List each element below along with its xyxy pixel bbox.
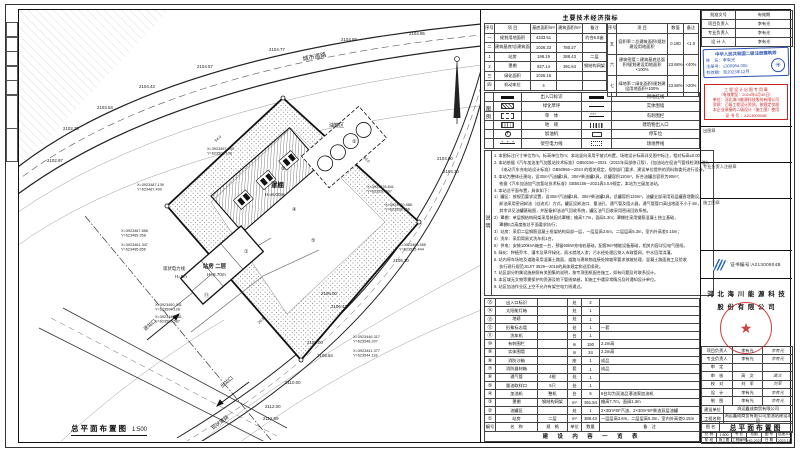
- legend-symbol-icon: [589, 116, 604, 117]
- plan-label: X=3923478.841: [367, 185, 394, 189]
- table-row: ⑭ 太阳能灯箱 处 1: [485, 307, 700, 315]
- legend-symbol-icon: [589, 96, 604, 99]
- legend-symbol-cell: [494, 120, 522, 129]
- plan-label: 2104.89: [341, 37, 357, 42]
- cell-qty: 1: [582, 315, 600, 323]
- plan-label: 罩棚: [271, 180, 284, 189]
- cell-name: 站房: [496, 415, 538, 423]
- table-row: ⑩ 有刺围栏 m 150 2.2m高: [485, 340, 700, 348]
- plan-label: 2103.54: [97, 105, 113, 110]
- table-row: 二 建筑基底/总建筑面积 1026.33 780.27: [485, 43, 607, 53]
- cell-note: [583, 71, 607, 81]
- cell-seq: 五: [608, 33, 617, 54]
- plan-label: X=3923441.377: [353, 349, 380, 353]
- cell-unit: 台: [568, 332, 582, 340]
- legend-strip-cell: [485, 139, 494, 148]
- cell-spec: 4根: [538, 373, 568, 381]
- cell-unit: 台: [568, 390, 582, 398]
- staff-role: 项目负责人: [702, 347, 733, 355]
- note-line: 6. 站内停车场地及道路采用混凝土路面，道路与建筑物连接处按坡率要求放坡处理，混…: [494, 257, 712, 264]
- table-header-row: 序号项 目 数值备注: [608, 24, 699, 34]
- cell-unit: m: [568, 340, 582, 348]
- cell-area1: 827.14: [531, 62, 557, 72]
- north-arrow-icon: [454, 56, 461, 124]
- plan-label: 2104.00: [437, 156, 453, 161]
- cell-name: 罩棚: [496, 398, 538, 406]
- note-line: 1. 本图标注尺寸单位为m，标高单位为m；本站竖向采用平坡式布置，场地设计标高详…: [494, 153, 712, 160]
- cell-qty: 150: [582, 340, 600, 348]
- cell-seq: 2: [485, 62, 495, 72]
- cell-item: 站房: [495, 52, 531, 62]
- cell-unit: m: [568, 348, 582, 356]
- seal-star: ★: [740, 320, 753, 337]
- cell-spec: [538, 299, 568, 307]
- plan-label: H=8.70m: [207, 272, 226, 277]
- legend-symbol-icon: [501, 113, 514, 119]
- cell-note: [600, 332, 700, 340]
- plan-label: X=3923463.555: [399, 243, 426, 247]
- table-row: 专业负责人 李有光: [702, 29, 793, 38]
- staff-role: 设 计: [702, 388, 733, 396]
- note-line: 5. 绿化：种植乔木、灌木及草坪绿化，雨水就地入渗；污水经处理后排入市政管网，中…: [494, 250, 712, 257]
- cell-no: ⑪: [485, 332, 496, 340]
- cell-area2: [557, 71, 583, 81]
- cell-spec: [538, 315, 568, 323]
- plan-label: ④: [292, 207, 297, 213]
- cell-item: 规划用地面积: [495, 33, 531, 43]
- cell-name: 有刺围栏: [496, 340, 538, 348]
- note-line: 3）站房：采用二层钢筋混凝土框架结构局部一层，一层层高3.6m，二层层高5.3m…: [494, 229, 712, 236]
- table-row: 一 规划用地面积 4333.51 约合6.5亩: [485, 33, 607, 43]
- plan-label: 站房 二层: [203, 262, 227, 270]
- plan-label: Y=623500.128: [155, 308, 180, 312]
- cell-spec: [538, 340, 568, 348]
- cell-spec: [538, 365, 568, 373]
- cell-area1: 1026.33: [531, 43, 557, 53]
- staff-signature: 李有光: [763, 355, 793, 363]
- cell-unit: 处: [568, 381, 582, 389]
- cell-no: ⑦: [485, 365, 496, 373]
- cell-qty: 1: [582, 323, 600, 331]
- plan-title: 总平面布置图1:500: [71, 423, 147, 436]
- cell-note: 钢结构网架: [583, 62, 607, 72]
- cell-seq: 三: [485, 71, 495, 81]
- stamp-line: 证 书 号 ：A21300904B: [706, 113, 786, 118]
- legend-symbol-cell: [582, 102, 612, 111]
- content-table-title: 建 设 内 容 一 览 表: [485, 431, 700, 441]
- plan-label: ⑪: [204, 292, 209, 299]
- legend-row: 架空电力线 场地界线: [485, 139, 700, 148]
- cell-qty: 1: [582, 365, 600, 373]
- cell-spec: [538, 348, 568, 356]
- legend-row: 出入口标识 用地红线: [485, 93, 700, 102]
- cell-name: 形象标志墙: [496, 323, 538, 331]
- staff-role: 专业负责人: [702, 355, 733, 363]
- cell-spec: 整机: [538, 390, 568, 398]
- plan-label: X=3923467.858: [121, 229, 148, 233]
- table-row: ⑤ 量油取样口 5只 处 1: [485, 381, 700, 389]
- plan-label: 2104.30: [443, 169, 459, 174]
- econ-left-table: 序号项 目 基底面积/m²建筑面积/m² 备注 一 规划用地面积 4333.51…: [484, 23, 607, 91]
- table-row: ⑫ 形象标志墙 处 1 一套: [485, 323, 700, 331]
- table-row: 项目负责人 李有光: [702, 20, 793, 29]
- notes-section: 说明 1. 本图标注尺寸单位为m，标高单位为m；本站竖向采用平坡式布置，场地设计…: [484, 150, 699, 296]
- cell-note: [600, 373, 700, 381]
- legend-label: 单 体: [522, 111, 582, 120]
- cell-no: ⑩: [485, 340, 496, 348]
- legend-symbol-cell: [582, 111, 612, 120]
- cell-unit: 套: [568, 365, 582, 373]
- existing-road: [39, 308, 287, 441]
- cell-qty: 6: [582, 390, 600, 398]
- plan-label: X=3923446.317: [353, 335, 380, 339]
- table-row: 校 对 刘 军 刘军: [702, 380, 793, 388]
- cell-spec: [538, 332, 568, 340]
- cell-note: 成品: [600, 365, 700, 373]
- plan-label: ③: [281, 166, 286, 172]
- plan-label: Y=623528.966: [385, 208, 410, 212]
- staff-signature: 李有光: [763, 397, 793, 405]
- cell-qty: 1: [582, 332, 600, 340]
- drawing-sheet: 2102.302102.972103.542104.432104.572104.…: [0, 0, 800, 452]
- cell-qty: 1: [582, 373, 600, 381]
- cell-spec: [538, 323, 568, 331]
- table-row: 三 绿化面积 1026.16: [485, 71, 607, 81]
- table-row: ⑥ 通气管 4根 处 1: [485, 373, 700, 381]
- cell-name: 地磅: [496, 315, 538, 323]
- legend-symbol-cell: [494, 139, 522, 148]
- role-name: 李有光: [736, 38, 793, 47]
- table-row: 五 容积率＝总建筑面积/规划建设用地面积 0.180 <1.0: [608, 33, 699, 54]
- cell-item: 建筑密度＝建筑基底总面积/规划建设用地面积×100%: [617, 54, 668, 75]
- table-row: 审 定: [702, 363, 793, 371]
- legend-symbol-cell: [494, 102, 522, 111]
- legend-label: 实体围墙: [612, 102, 700, 111]
- cell-qty: 1: [582, 357, 600, 365]
- staff-signature: 刘军: [763, 380, 793, 388]
- staff-name: 高 文: [733, 372, 763, 380]
- cell-value: 23.68%: [668, 54, 684, 75]
- project-value: 鸿运鑫成商贸有限公司: [724, 406, 793, 414]
- plan-label: X=3923461.347: [121, 243, 148, 247]
- plan-label: H=8.00m: [265, 192, 285, 198]
- cell-note: [600, 307, 700, 315]
- title-block: 批准文号 有效期 项目负责人 李有光 专业负责人 李有光 设 计 人 李有光 中…: [700, 10, 791, 443]
- legend-symbol-cell: [494, 130, 522, 139]
- table-row: ⑨ 实体围墙 m 34 2.2m高: [485, 348, 700, 356]
- approval-col2: 有效期: [736, 11, 793, 20]
- table-row: 专业负责人 李有光 李有光: [702, 355, 793, 363]
- cell-unit: 处: [568, 373, 582, 381]
- table-row: 建设单位 鸿运鑫成商贸有限公司: [702, 406, 793, 414]
- cell-qty: 1: [582, 381, 600, 389]
- legend-symbol-icon: [501, 96, 514, 100]
- table-row: 1 站房 198.19 388.43 二层: [485, 52, 607, 62]
- plan-title-text: 总平面布置图: [71, 424, 128, 433]
- cell-spec: 钢结构网架: [538, 398, 568, 406]
- cell-qty: 391.84: [582, 398, 600, 406]
- cell-note: [583, 81, 607, 91]
- cell-item: 容积率＝总建筑面积/规划建设用地面积: [617, 33, 668, 54]
- site-plan: 2102.302102.972103.542104.432104.572104.…: [19, 10, 480, 441]
- binding-cell: [6, 22, 18, 37]
- binding-cell: [6, 80, 18, 95]
- legend-symbol-cell: [582, 120, 612, 129]
- plan-label: H=8m: [175, 274, 187, 279]
- legend-symbol-icon: [592, 132, 602, 138]
- cell-note: 6台均为双油品潜油泵加油机: [600, 390, 700, 398]
- cell-unit: 处: [568, 299, 582, 307]
- legend-symbol-icon: [501, 103, 514, 109]
- plan-label: 城市道路: [302, 51, 327, 63]
- staff-signature: [763, 363, 793, 371]
- staff-table: 项目负责人 李有光 李有光 专业负责人 李有光 李有光 审 定 审 核 高 文 …: [701, 346, 793, 406]
- staff-role: 制 图: [702, 397, 733, 405]
- legend-label: 停车位: [612, 130, 700, 139]
- plan-scale: 1:500: [132, 427, 147, 433]
- staff-role: 校 对: [702, 380, 733, 388]
- legend-symbol-cell: [494, 111, 522, 120]
- cell-area1: 1026.16: [531, 71, 557, 81]
- cell-qty: 1: [582, 307, 600, 315]
- plan-label: Y=623487.490: [137, 188, 162, 192]
- legend-label: 地 磅: [522, 120, 582, 129]
- staff-signature: 李有光: [763, 388, 793, 396]
- cell-note: 一层层高3.6m，二层层高5.3m，室内外高差0.15m: [600, 415, 700, 423]
- legend-symbol-icon: [500, 143, 515, 144]
- plan-label: 2102.97: [47, 158, 63, 163]
- legend-row: 地 磅 建筑物出入口: [485, 120, 700, 129]
- cell-seq: 六: [608, 54, 617, 75]
- table-row: 审 核 高 文 高文: [702, 372, 793, 380]
- cell-spec: 二层: [538, 415, 568, 423]
- cell-area1: 4333.51: [531, 33, 557, 43]
- plan-label: ②: [352, 139, 357, 145]
- table-row: 批准文号 有效期: [702, 11, 793, 20]
- legend-label: 加油机: [522, 130, 582, 139]
- legend-symbol-icon: [501, 122, 514, 128]
- table-row: ⑮ 出入口标识 处 2: [485, 299, 700, 307]
- plan-label: 80.0: [362, 156, 370, 164]
- plan-label: 2110.00: [285, 380, 301, 385]
- table-row: 阶 段施工图 工程编号HQ-2023-12 日 期2023.11: [702, 438, 792, 444]
- content-table-title-row: 建 设 内 容 一 览 表: [485, 431, 700, 441]
- cell-no: ⑤: [485, 381, 496, 389]
- cell-qty: 388.43: [582, 415, 600, 423]
- cell-note: 约合6.5亩: [583, 33, 607, 43]
- legend-label: 架空电力线: [522, 139, 582, 148]
- cell-no: ①: [485, 415, 496, 423]
- cell-no: ③: [485, 398, 496, 406]
- construction-seal-box: 施工图章: [701, 198, 792, 250]
- table-row: ⑧ 消防沙箱 座 1 成品: [485, 357, 700, 365]
- plan-label: X=3923487.139: [137, 183, 164, 187]
- cell-note: 2×30m³SF汽油、2×30m³SF柴油双层油罐: [600, 406, 700, 414]
- legend-strip-label: 图例: [485, 106, 492, 122]
- table-row: 制 图 李有光 李有光: [702, 397, 793, 405]
- staff-role: 审 定: [702, 363, 733, 371]
- plan-label: Y=623544.118: [353, 354, 378, 358]
- box-label: 专业负责人注册章: [701, 163, 792, 170]
- middle-panel: 主要技术经济指标 序号项 目 基底面积/m²建筑面积/m² 备注 一 规划用地面…: [480, 10, 700, 443]
- cell-spec: [538, 307, 568, 315]
- plan-label: X=3923450.341: [155, 303, 182, 307]
- chutu-seal-box: 出图章: [701, 126, 792, 162]
- binding-cell: [6, 95, 18, 129]
- cell-unit: m²: [568, 398, 582, 406]
- table-header-row: 序号项 目 基底面积/m²建筑面积/m² 备注: [485, 24, 607, 34]
- box-label: 出图章: [701, 127, 792, 134]
- stamp-line: 本企业承接的二级设计（施工图）使用: [706, 107, 786, 112]
- note-line: 《电动汽车充电站设计标准》GB50966—2024 的相关规定，规划部门要求、建…: [494, 167, 712, 174]
- registration-seal-box: 专业负责人注册章: [701, 162, 792, 198]
- note-line: 9. 站区加油作业区上空不允许有架空电力线通过。: [494, 284, 712, 291]
- legend-strip-cell: [485, 130, 494, 139]
- legend-symbol-icon: [589, 106, 604, 107]
- company-logo-icon: [712, 259, 728, 271]
- table-row: 六 建筑密度＝建筑基底总面积/规划建设用地面积×100% 23.68% <40%: [608, 54, 699, 75]
- cell-no: ⑥: [485, 373, 496, 381]
- cell-no: ⑭: [485, 307, 496, 315]
- plan-label: X=3923497.890: [207, 147, 234, 151]
- plan-label: X=3923470.588: [385, 203, 412, 207]
- plan-label: 2108.00: [307, 340, 323, 345]
- binding-cell: [6, 51, 18, 66]
- plan-label: Y=623489.358: [121, 234, 146, 238]
- legend-symbol-cell: [494, 93, 522, 102]
- cell-note: [600, 315, 700, 323]
- binding-strip: [6, 22, 18, 162]
- cell-name: 出入口标识: [496, 299, 538, 307]
- registered-architect-stamp: 中华人民共和国二级注册建筑师 姓 名：李有光 注册号：1300984-005 有…: [703, 47, 790, 78]
- cell-area2: 388.43: [557, 52, 583, 62]
- table-row: ② 油罐区 处 1 2×30m³SF汽油、2×30m³SF柴油双层油罐: [485, 406, 700, 414]
- design-output-stamp: 工 程 设 计 出 图 专 用 章（有效期至：2024年4月30日）单位：河北海…: [704, 84, 788, 120]
- cell-note: 一套: [600, 323, 700, 331]
- role-label: 专业负责人: [702, 29, 736, 38]
- plan-label: 现状电力线: [163, 265, 186, 272]
- table-row: 设 计 人 李有光: [702, 38, 793, 47]
- legend-symbol-cell: [582, 93, 612, 102]
- content-table: ⑮ 出入口标识 处 2 ⑭ 太阳能灯箱 处 1 ⑬ 地磅: [484, 298, 700, 442]
- legend-label: 有刺围栏: [612, 111, 700, 120]
- company-name-line: 河 北 海 川 能 源 科 技: [707, 289, 786, 298]
- plan-label: ⑤: [311, 238, 316, 244]
- cell-name: 消防沙箱: [496, 357, 538, 365]
- note-line: 4）洗车：采用简易式洗车机1台。: [494, 236, 712, 243]
- table-row: ⑬ 地磅 处 1: [485, 315, 700, 323]
- legend-symbol-icon: [591, 141, 602, 147]
- plan-label: 2106.43: [331, 304, 347, 309]
- legend-symbol-icon: [505, 131, 511, 137]
- notes-body: 1. 本图标注尺寸单位为m，标高单位为m；本站竖向采用平坡式布置，场地设计标高详…: [492, 150, 714, 296]
- cell-no: ④: [485, 390, 496, 398]
- binding-cell: [6, 37, 18, 52]
- plan-label: ①: [244, 249, 249, 255]
- table-header-row: 编号名 称 规 格单位 数量备 注: [485, 423, 700, 431]
- note-line: 3. 本站为整体迁建站，设30m³汽油罐2具、30m³柴油罐2具，总罐容积120…: [494, 174, 712, 181]
- note-line: 5）供电：安装100kVA箱变一台，预留60kW充电桩基础，配套9m²储能设备基…: [494, 243, 712, 250]
- cell-no: ⑬: [485, 315, 496, 323]
- plan-label: 54.0: [214, 135, 222, 143]
- cell-area1: 198.19: [531, 52, 557, 62]
- cell-seq: 四: [485, 81, 495, 91]
- cell-note: <40%: [684, 54, 699, 75]
- site-plan-svg: 2102.302102.972103.542104.432104.572104.…: [19, 10, 480, 441]
- legend-row: 加油机 停车位: [485, 130, 700, 139]
- cell-note: 2.2m高: [600, 348, 700, 356]
- binding-cell: [6, 128, 18, 162]
- cell-name: 油罐区: [496, 406, 538, 414]
- cell-note: 檐高7.7m，面阔1.3m: [600, 398, 700, 406]
- cell-name: 加油机: [496, 390, 538, 398]
- cell-unit: m²: [568, 415, 582, 423]
- legend-table: 出入口标识 用地红线 绿化草坪 实体围墙 单 体 有刺围栏: [484, 92, 700, 149]
- cell-unit: 处: [568, 323, 582, 331]
- legend-row: 绿化草坪 实体围墙: [485, 102, 700, 111]
- cell-name: 实体围墙: [496, 348, 538, 356]
- cell-name: 量油取样口: [496, 381, 538, 389]
- staff-name: 李有光: [733, 388, 763, 396]
- cell-area2: 391.84: [557, 62, 583, 72]
- cell-seq: 二: [485, 43, 495, 53]
- box-label: 施工图章: [701, 199, 792, 206]
- cell-name: 消防器材箱: [496, 365, 538, 373]
- table-row: 2 罩棚 827.14 391.84 钢结构网架: [485, 62, 607, 72]
- cell-name: 通气管: [496, 373, 538, 381]
- cell-item: 建筑基底/总建筑面积: [495, 43, 531, 53]
- role-name: 李有光: [736, 20, 793, 29]
- cell-unit: 座: [568, 357, 582, 365]
- plan-label: 2112.00: [265, 404, 281, 409]
- legend-label: 出入口标识: [522, 93, 582, 102]
- plan-label: Y=623548.207: [353, 340, 378, 344]
- cell-note: [600, 299, 700, 307]
- staff-role: 审 核: [702, 372, 733, 380]
- cell-area2: [557, 33, 583, 43]
- cell-unit: 处: [568, 307, 582, 315]
- cell-item: 罩棚: [495, 62, 531, 72]
- legend-label: 建筑物出入口: [612, 120, 700, 129]
- plan-label: 2108.54: [317, 353, 333, 358]
- role-name: 李有光: [736, 29, 793, 38]
- table-row: ④ 加油机 整机 台 6 6台均为双油品潜油泵加油机: [485, 390, 700, 398]
- certificate-number: 证书编号:A21300904B: [730, 262, 781, 268]
- plan-label: 2102.30: [63, 126, 79, 131]
- cell-note: 成品: [600, 357, 700, 365]
- cell-qty: 2: [582, 299, 600, 307]
- cell-spec: [538, 357, 568, 365]
- cell-item: 绿化面积: [495, 71, 531, 81]
- staff-signature: 李有光: [763, 347, 793, 355]
- table-row: ③ 罩棚 钢结构网架 m² 391.84 檐高7.7m，面阔1.3m: [485, 398, 700, 406]
- role-label: 项目负责人: [702, 20, 736, 29]
- cell-spec: 5只: [538, 381, 568, 389]
- staff-name: [733, 363, 763, 371]
- certificate-row: 证书编号:A21300904B: [701, 250, 792, 278]
- note-line: 2. 本站依据《汽车加油加气加氢站技术标准》GB50156—2021（2021年…: [494, 160, 712, 167]
- plan-label: Y=623520.667: [367, 190, 392, 194]
- plan-label: 2104.43: [139, 84, 155, 89]
- project-label: 建设单位: [702, 406, 724, 414]
- role-label: 设 计 人: [702, 38, 736, 47]
- cell-note: 二层: [583, 52, 607, 62]
- cell-unit: 处: [568, 406, 582, 414]
- plan-label: 2105.10: [393, 258, 409, 263]
- plan-label: Y=623505.587: [155, 320, 180, 324]
- cell-qty: 1: [582, 406, 600, 414]
- plan-label: Y=623509.108: [207, 152, 232, 156]
